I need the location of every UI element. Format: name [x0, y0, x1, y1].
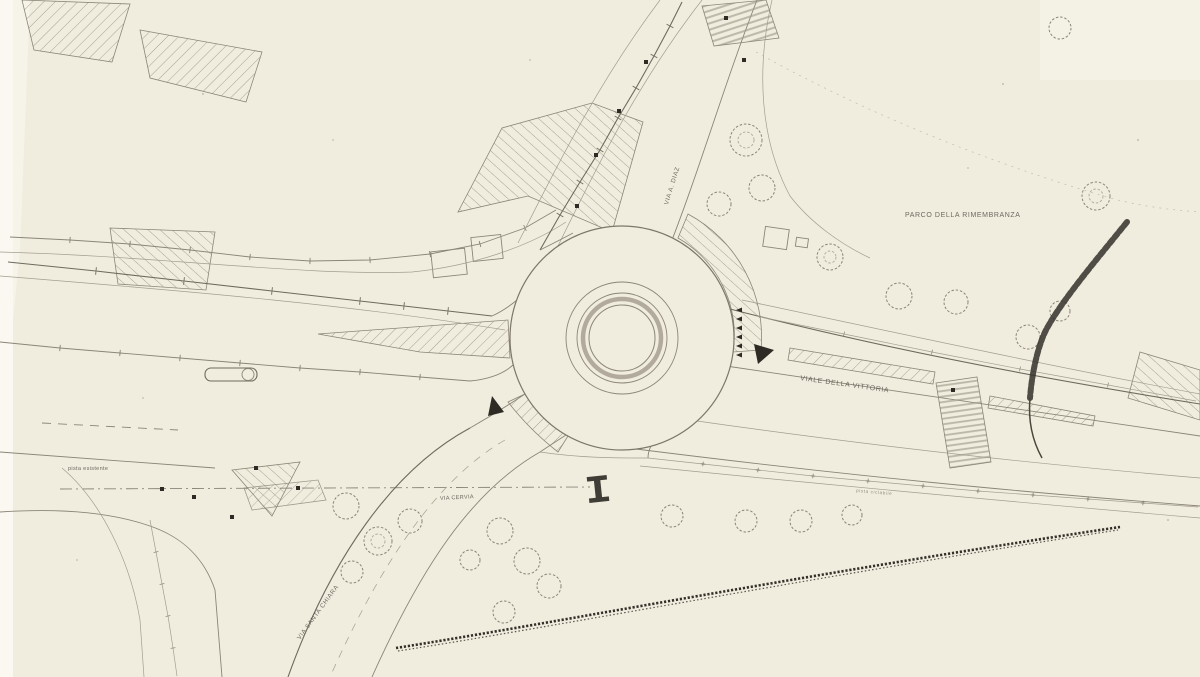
roundabout — [510, 226, 734, 450]
site-plan-drawing: PARCO DELLA RIMEMBRANZA VIALE DELLA VITT… — [0, 0, 1200, 677]
scanned-roundabout-site-plan: PARCO DELLA RIMEMBRANZA VIALE DELLA VITT… — [0, 0, 1200, 677]
roundabout-outer-circle — [510, 226, 734, 450]
crosswalk-north — [702, 0, 779, 46]
label-parco-della-rimembranza: PARCO DELLA RIMEMBRANZA — [905, 212, 1021, 219]
label-pista-esistente: pista esistente — [68, 466, 108, 472]
building-block — [110, 228, 215, 290]
